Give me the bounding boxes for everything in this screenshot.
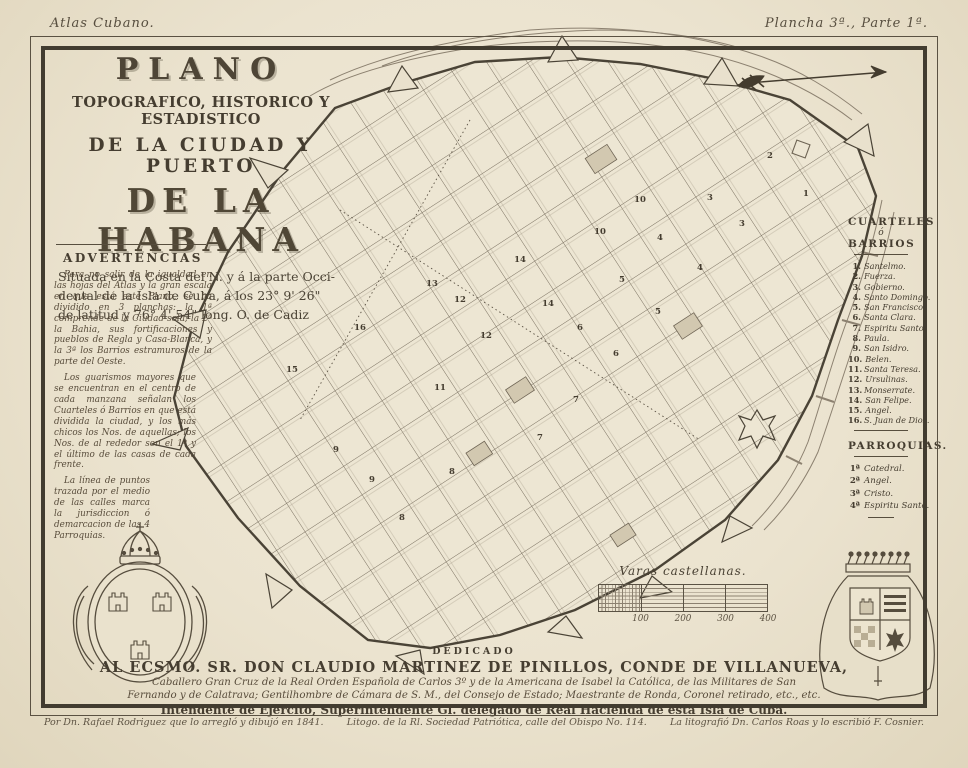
- cuartel-number: 7: [537, 433, 543, 443]
- cuartel-number: 9: [369, 475, 375, 485]
- legend-rule: [854, 254, 908, 255]
- cuarteles-title-bottom: BARRIOS: [848, 238, 914, 250]
- legend-rule: [868, 517, 894, 518]
- cuartel-list-item: 4.Santo Domingo.: [848, 292, 914, 302]
- cuartel-number: 11: [434, 383, 446, 393]
- scale-tick: 300: [717, 614, 734, 624]
- cuartel-number: 13: [426, 279, 438, 289]
- advertencias-heading: ADVERTENCIAS: [54, 251, 212, 265]
- credit-lithographer: La litografió Dn. Carlos Roas y lo escri…: [670, 717, 924, 728]
- cuartel-number: 14: [542, 299, 554, 309]
- scale-bar-divider: [683, 585, 684, 611]
- plate-number-label: Plancha 3ª., Parte 1ª.: [765, 16, 928, 31]
- cuartel-number: 8: [449, 467, 455, 477]
- advertencias-block: ADVERTENCIAS Para no salir de la igualda…: [54, 251, 212, 542]
- cuartel-number: 10: [634, 195, 646, 205]
- scale-bar-label: Varas castellanas.: [598, 564, 768, 578]
- cuartel-number: 12: [454, 295, 466, 305]
- cuartel-number: 5: [655, 307, 661, 317]
- parroquia-list-item: 4ªEspiritu Santo.: [848, 500, 914, 513]
- cuartel-number: 10: [594, 227, 606, 237]
- scale-tick: 100: [632, 614, 649, 624]
- parroquia-list-item: 3ªCristo.: [848, 488, 914, 501]
- legend-panel: CUARTELES ó BARRIOS 1.Santelmo. 2.Fuerza…: [848, 216, 914, 518]
- cuartel-list-item: 5.San Francisco.: [848, 302, 914, 312]
- cuartel-list-item: 8.Paula.: [848, 333, 914, 343]
- parroquia-list-item: 1ªCatedral.: [848, 463, 914, 476]
- cuartel-number: 9: [333, 445, 339, 455]
- cuartel-list-item: 15.Angel.: [848, 405, 914, 415]
- scale-tick: 400: [760, 614, 777, 624]
- cuartel-list-item: 9.San Isidro.: [848, 343, 914, 353]
- cuartel-number: 7: [573, 395, 579, 405]
- parroquias-title: PARROQUIAS.: [848, 440, 914, 452]
- map-title-line2: TOPOGRAFICO, HISTORICO Y ESTADISTICO: [50, 94, 352, 128]
- cuartel-number: 16: [354, 323, 366, 333]
- cuartel-number: 8: [399, 513, 405, 523]
- cuartel-number: 6: [613, 349, 619, 359]
- legend-rule: [854, 430, 908, 431]
- scale-bar-ticks: 100 200 300 400: [598, 612, 768, 624]
- cuartel-number: 2: [767, 151, 773, 161]
- cuartel-number: 3: [739, 219, 745, 229]
- parroquias-list: 1ªCatedral. 2ªAngel. 3ªCristo. 4ªEspirit…: [848, 463, 914, 513]
- cuartel-number: 4: [657, 233, 663, 243]
- cuartel-list-item: 14.San Felipe.: [848, 395, 914, 405]
- cuartel-list-item: 7.Espiritu Santo.: [848, 323, 914, 333]
- cuartel-list-item: 16.S. Juan de Dios.: [848, 415, 914, 425]
- parroquia-list-item: 2ªAngel.: [848, 475, 914, 488]
- cuartel-list-item: 12.Ursulinas.: [848, 374, 914, 384]
- cuarteles-list: 1.Santelmo. 2.Fuerza. 3.Gobierno. 4.Sant…: [848, 261, 914, 426]
- cuartel-list-item: 6.Santa Clara.: [848, 312, 914, 322]
- advertencias-paragraph: Los guarismos mayores que se encuentran …: [54, 373, 196, 471]
- map-title-habana: DE LA HABANA: [50, 181, 352, 259]
- cuartel-number: 3: [707, 193, 713, 203]
- cuartel-number: 14: [514, 255, 526, 265]
- cuartel-list-item: 1.Santelmo.: [848, 261, 914, 271]
- scale-bar: Varas castellanas. 100 200 300 400: [598, 564, 768, 624]
- dedication-block: DEDICADO AL ECSMO. SR. DON CLAUDIO MARTI…: [60, 646, 888, 717]
- dedication-line1: AL ECSMO. SR. DON CLAUDIO MARTINEZ DE PI…: [60, 659, 888, 676]
- scale-bar-divider: [725, 585, 726, 611]
- atlas-series-label: Atlas Cubano.: [50, 16, 155, 31]
- scale-bar-hatch: [599, 585, 642, 611]
- cuartel-list-item: 3.Gobierno.: [848, 282, 914, 292]
- cuartel-number: 15: [286, 365, 298, 375]
- legend-rule: [854, 456, 908, 457]
- advertencias-paragraph: La línea de puntos trazada por el medio …: [54, 476, 150, 541]
- imprint-credits: Por Dn. Rafael Rodriguez que lo arregló …: [44, 717, 924, 728]
- cuartel-list-item: 13.Monserrate.: [848, 385, 914, 395]
- credit-lithography-shop: Litogo. de la Rl. Sociedad Patriótica, c…: [347, 717, 647, 728]
- dedication-line3: Fernando y de Calatrava; Gentilhombre de…: [60, 690, 888, 702]
- cuartel-number: 5: [619, 275, 625, 285]
- map-title-line3: DE LA CIUDAD Y PUERTO: [50, 135, 352, 177]
- cuartel-number: 6: [577, 323, 583, 333]
- cuarteles-amp: ó: [848, 228, 914, 238]
- cuartel-list-item: 2.Fuerza.: [848, 271, 914, 281]
- cuartel-number: 4: [697, 263, 703, 273]
- map-title-plano: PLANO: [50, 52, 352, 87]
- advertencias-paragraph: Para no salir de la igualdad en las hoja…: [54, 270, 212, 368]
- dedication-line4: Intendente de Ejercito, Superintendente …: [60, 703, 888, 717]
- title-divider-rule: [56, 244, 206, 245]
- cuartel-list-item: 10.Belen.: [848, 354, 914, 364]
- scale-tick: 200: [675, 614, 692, 624]
- credit-draughtsman: Por Dn. Rafael Rodriguez que lo arregló …: [44, 717, 324, 728]
- dedication-kicker: DEDICADO: [60, 646, 888, 657]
- dedication-line2: Caballero Gran Cruz de la Real Orden Esp…: [60, 677, 888, 689]
- cuartel-number: 12: [480, 331, 492, 341]
- cuartel-number: 1: [803, 189, 809, 199]
- scale-bar-graphic: [598, 584, 768, 612]
- cuarteles-title-top: CUARTELES: [848, 216, 914, 228]
- cuartel-list-item: 11.Santa Teresa.: [848, 364, 914, 374]
